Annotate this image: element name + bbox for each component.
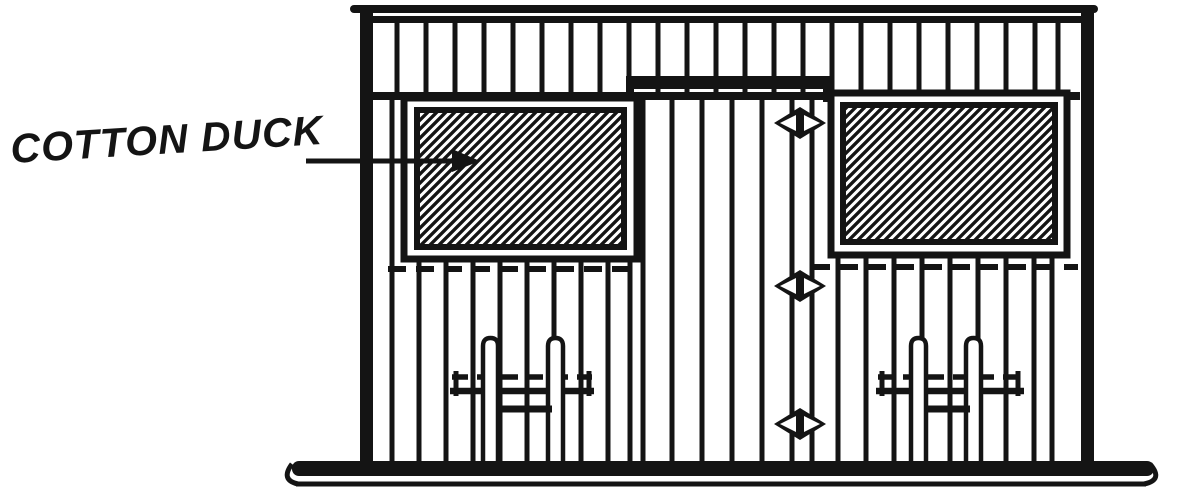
right-corner-post (1081, 12, 1094, 464)
left-feeder-post-a (483, 338, 498, 464)
right-feeder-post-a (911, 338, 926, 464)
right-cotton-duck-hatching (843, 105, 1055, 242)
left-corner-post (360, 12, 373, 464)
right-feeder-post-b (966, 338, 981, 464)
shed-front-elevation-drawing (0, 0, 1180, 496)
right-window-cotton-duck-panel (831, 93, 1067, 255)
left-cotton-duck-hatching (417, 110, 624, 247)
left-window-cotton-duck-panel (404, 98, 637, 259)
left-feeder-post-b (548, 338, 563, 464)
figure-canvas: COTTON DUCK (0, 0, 1180, 496)
